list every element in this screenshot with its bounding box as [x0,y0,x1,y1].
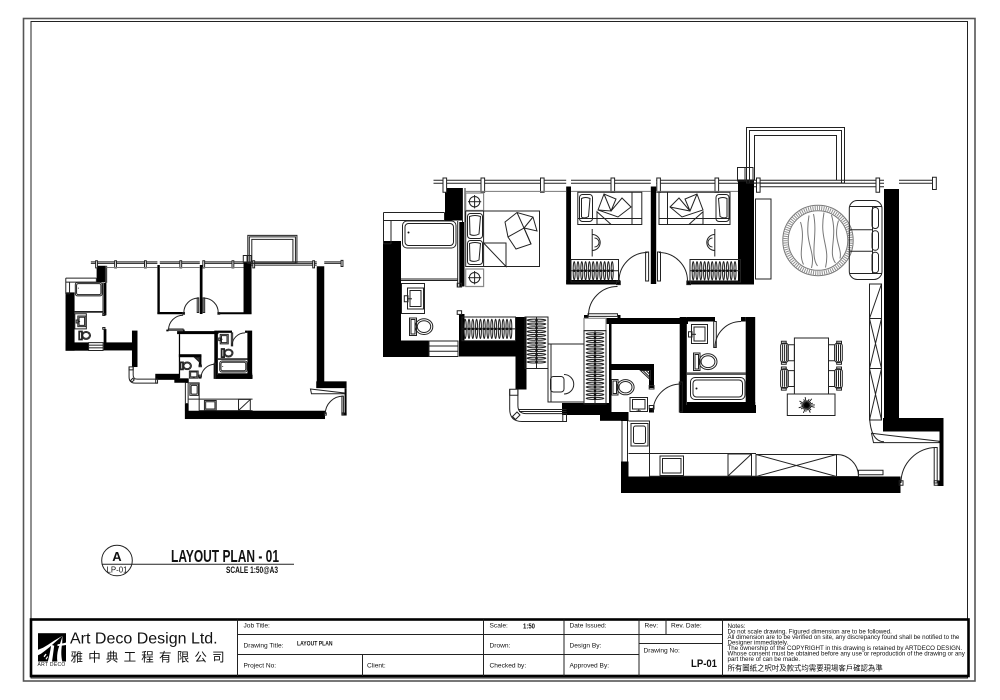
svg-text:part there of can be made.: part there of can be made. [728,656,801,663]
svg-text:LAYOUT PLAN: LAYOUT PLAN [297,641,333,648]
svg-text:LP-01: LP-01 [107,566,128,575]
svg-text:Drawing Title:: Drawing Title: [244,643,284,650]
svg-text:Checked by:: Checked by: [490,663,527,670]
svg-text:Approved By:: Approved By: [570,663,610,670]
svg-text:Job Title:: Job Title: [244,623,271,630]
svg-text:SCALE 1:50@A3: SCALE 1:50@A3 [226,565,278,575]
svg-text:Date Issued:: Date Issued: [570,623,607,630]
svg-text:Drown:: Drown: [490,643,511,650]
svg-text:Drawing No:: Drawing No: [644,648,680,655]
svg-text:1:50: 1:50 [523,622,535,631]
svg-text:A: A [112,549,122,564]
svg-text:所有圖紙之呎吋及款式均需要現場客戶確認為準: 所有圖紙之呎吋及款式均需要現場客戶確認為準 [728,664,884,673]
svg-text:LAYOUT PLAN - 01: LAYOUT PLAN - 01 [171,546,279,566]
svg-text:Art Deco Design Ltd.: Art Deco Design Ltd. [70,631,218,648]
svg-text:LP-01: LP-01 [691,658,717,670]
svg-text:Rev. Date:: Rev. Date: [671,623,702,630]
svg-text:Rev:: Rev: [645,623,659,630]
svg-text:Project No:: Project No: [244,663,277,670]
svg-text:雅中典工程有限公司: 雅中典工程有限公司 [71,650,230,665]
svg-text:Scale:: Scale: [490,623,508,630]
svg-text:Client:: Client: [367,663,386,670]
svg-text:ART DECO: ART DECO [38,662,66,668]
svg-text:Design By:: Design By: [570,643,602,650]
